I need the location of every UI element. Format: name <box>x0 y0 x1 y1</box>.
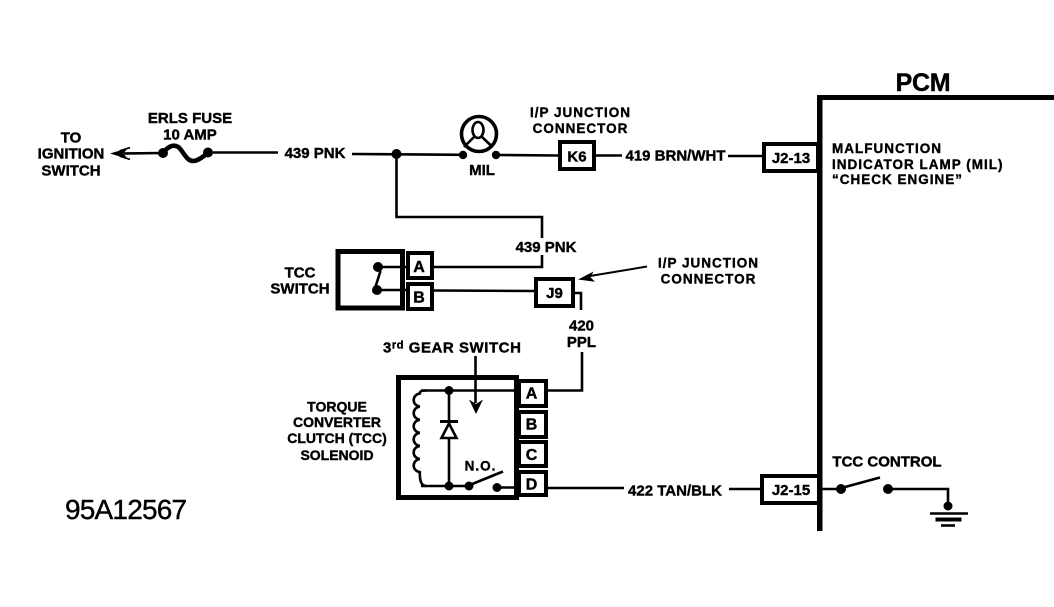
svg-text:J9: J9 <box>546 285 563 302</box>
svg-text:TCC CONTROL: TCC CONTROL <box>832 453 941 470</box>
svg-text:TO: TO <box>61 129 82 146</box>
svg-text:PPL: PPL <box>567 334 596 351</box>
svg-text:CLUTCH (TCC): CLUTCH (TCC) <box>287 430 387 446</box>
svg-text:I/P JUNCTION: I/P JUNCTION <box>530 105 631 120</box>
svg-text:SOLENOID: SOLENOID <box>300 447 373 463</box>
svg-text:TCC: TCC <box>285 265 316 282</box>
svg-text:CONNECTOR: CONNECTOR <box>533 121 629 136</box>
svg-text:CONNECTOR: CONNECTOR <box>661 271 757 286</box>
svg-text:439 PNK: 439 PNK <box>516 239 577 256</box>
svg-text:INDICATOR LAMP (MIL): INDICATOR LAMP (MIL) <box>832 157 1004 172</box>
svg-text:MIL: MIL <box>469 162 495 179</box>
svg-text:SWITCH: SWITCH <box>41 162 100 179</box>
svg-text:J2-13: J2-13 <box>772 150 810 167</box>
svg-text:PCM: PCM <box>896 69 951 97</box>
svg-text:“CHECK ENGINE”: “CHECK ENGINE” <box>832 172 963 187</box>
svg-text:422 TAN/BLK: 422 TAN/BLK <box>628 482 722 499</box>
svg-text:A: A <box>526 386 538 403</box>
svg-text:MALFUNCTION: MALFUNCTION <box>832 141 942 156</box>
svg-text:D: D <box>526 477 538 494</box>
svg-text:CONVERTER: CONVERTER <box>293 414 381 430</box>
svg-text:IGNITION: IGNITION <box>38 146 105 163</box>
svg-text:419 BRN/WHT: 419 BRN/WHT <box>625 148 725 165</box>
svg-text:420: 420 <box>569 317 594 334</box>
svg-text:10 AMP: 10 AMP <box>163 127 217 144</box>
svg-text:SWITCH: SWITCH <box>270 281 329 298</box>
svg-text:ERLS FUSE: ERLS FUSE <box>148 110 232 127</box>
svg-text:I/P JUNCTION: I/P JUNCTION <box>658 255 759 270</box>
svg-text:B: B <box>413 290 425 307</box>
svg-text:C: C <box>526 447 538 464</box>
svg-text:B: B <box>526 417 538 434</box>
svg-text:N.O.: N.O. <box>465 458 497 473</box>
svg-text:95A12567: 95A12567 <box>65 494 187 525</box>
svg-text:K6: K6 <box>567 149 586 166</box>
svg-text:J2-15: J2-15 <box>772 482 810 499</box>
svg-text:439 PNK: 439 PNK <box>285 145 346 162</box>
svg-text:A: A <box>413 259 425 276</box>
svg-text:3rd GEAR SWITCH: 3rd GEAR SWITCH <box>383 339 521 356</box>
svg-text:TORQUE: TORQUE <box>307 399 367 415</box>
